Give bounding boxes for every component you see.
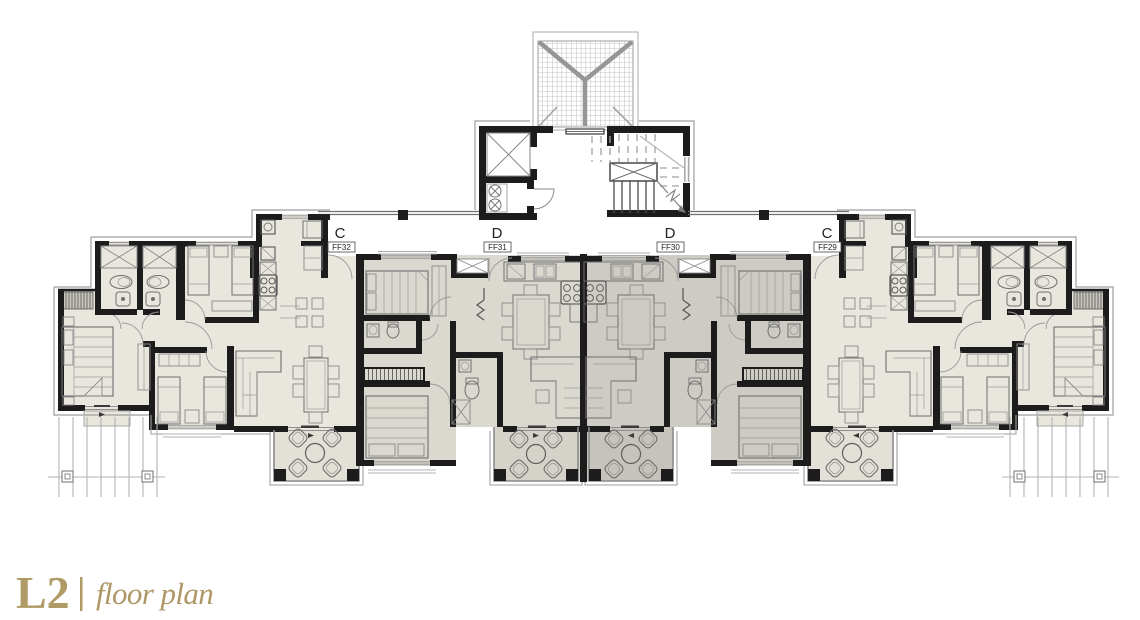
svg-text:C: C [822, 225, 833, 242]
svg-text:floor plan: floor plan [96, 576, 213, 611]
svg-text:FF32: FF32 [332, 243, 351, 252]
svg-text:FF31: FF31 [488, 243, 507, 252]
svg-text:FF29: FF29 [818, 243, 837, 252]
svg-text:C: C [335, 225, 346, 242]
svg-text:L2: L2 [16, 567, 70, 618]
svg-text:D: D [492, 225, 503, 242]
svg-text:FF30: FF30 [661, 243, 680, 252]
svg-text:D: D [665, 225, 676, 242]
